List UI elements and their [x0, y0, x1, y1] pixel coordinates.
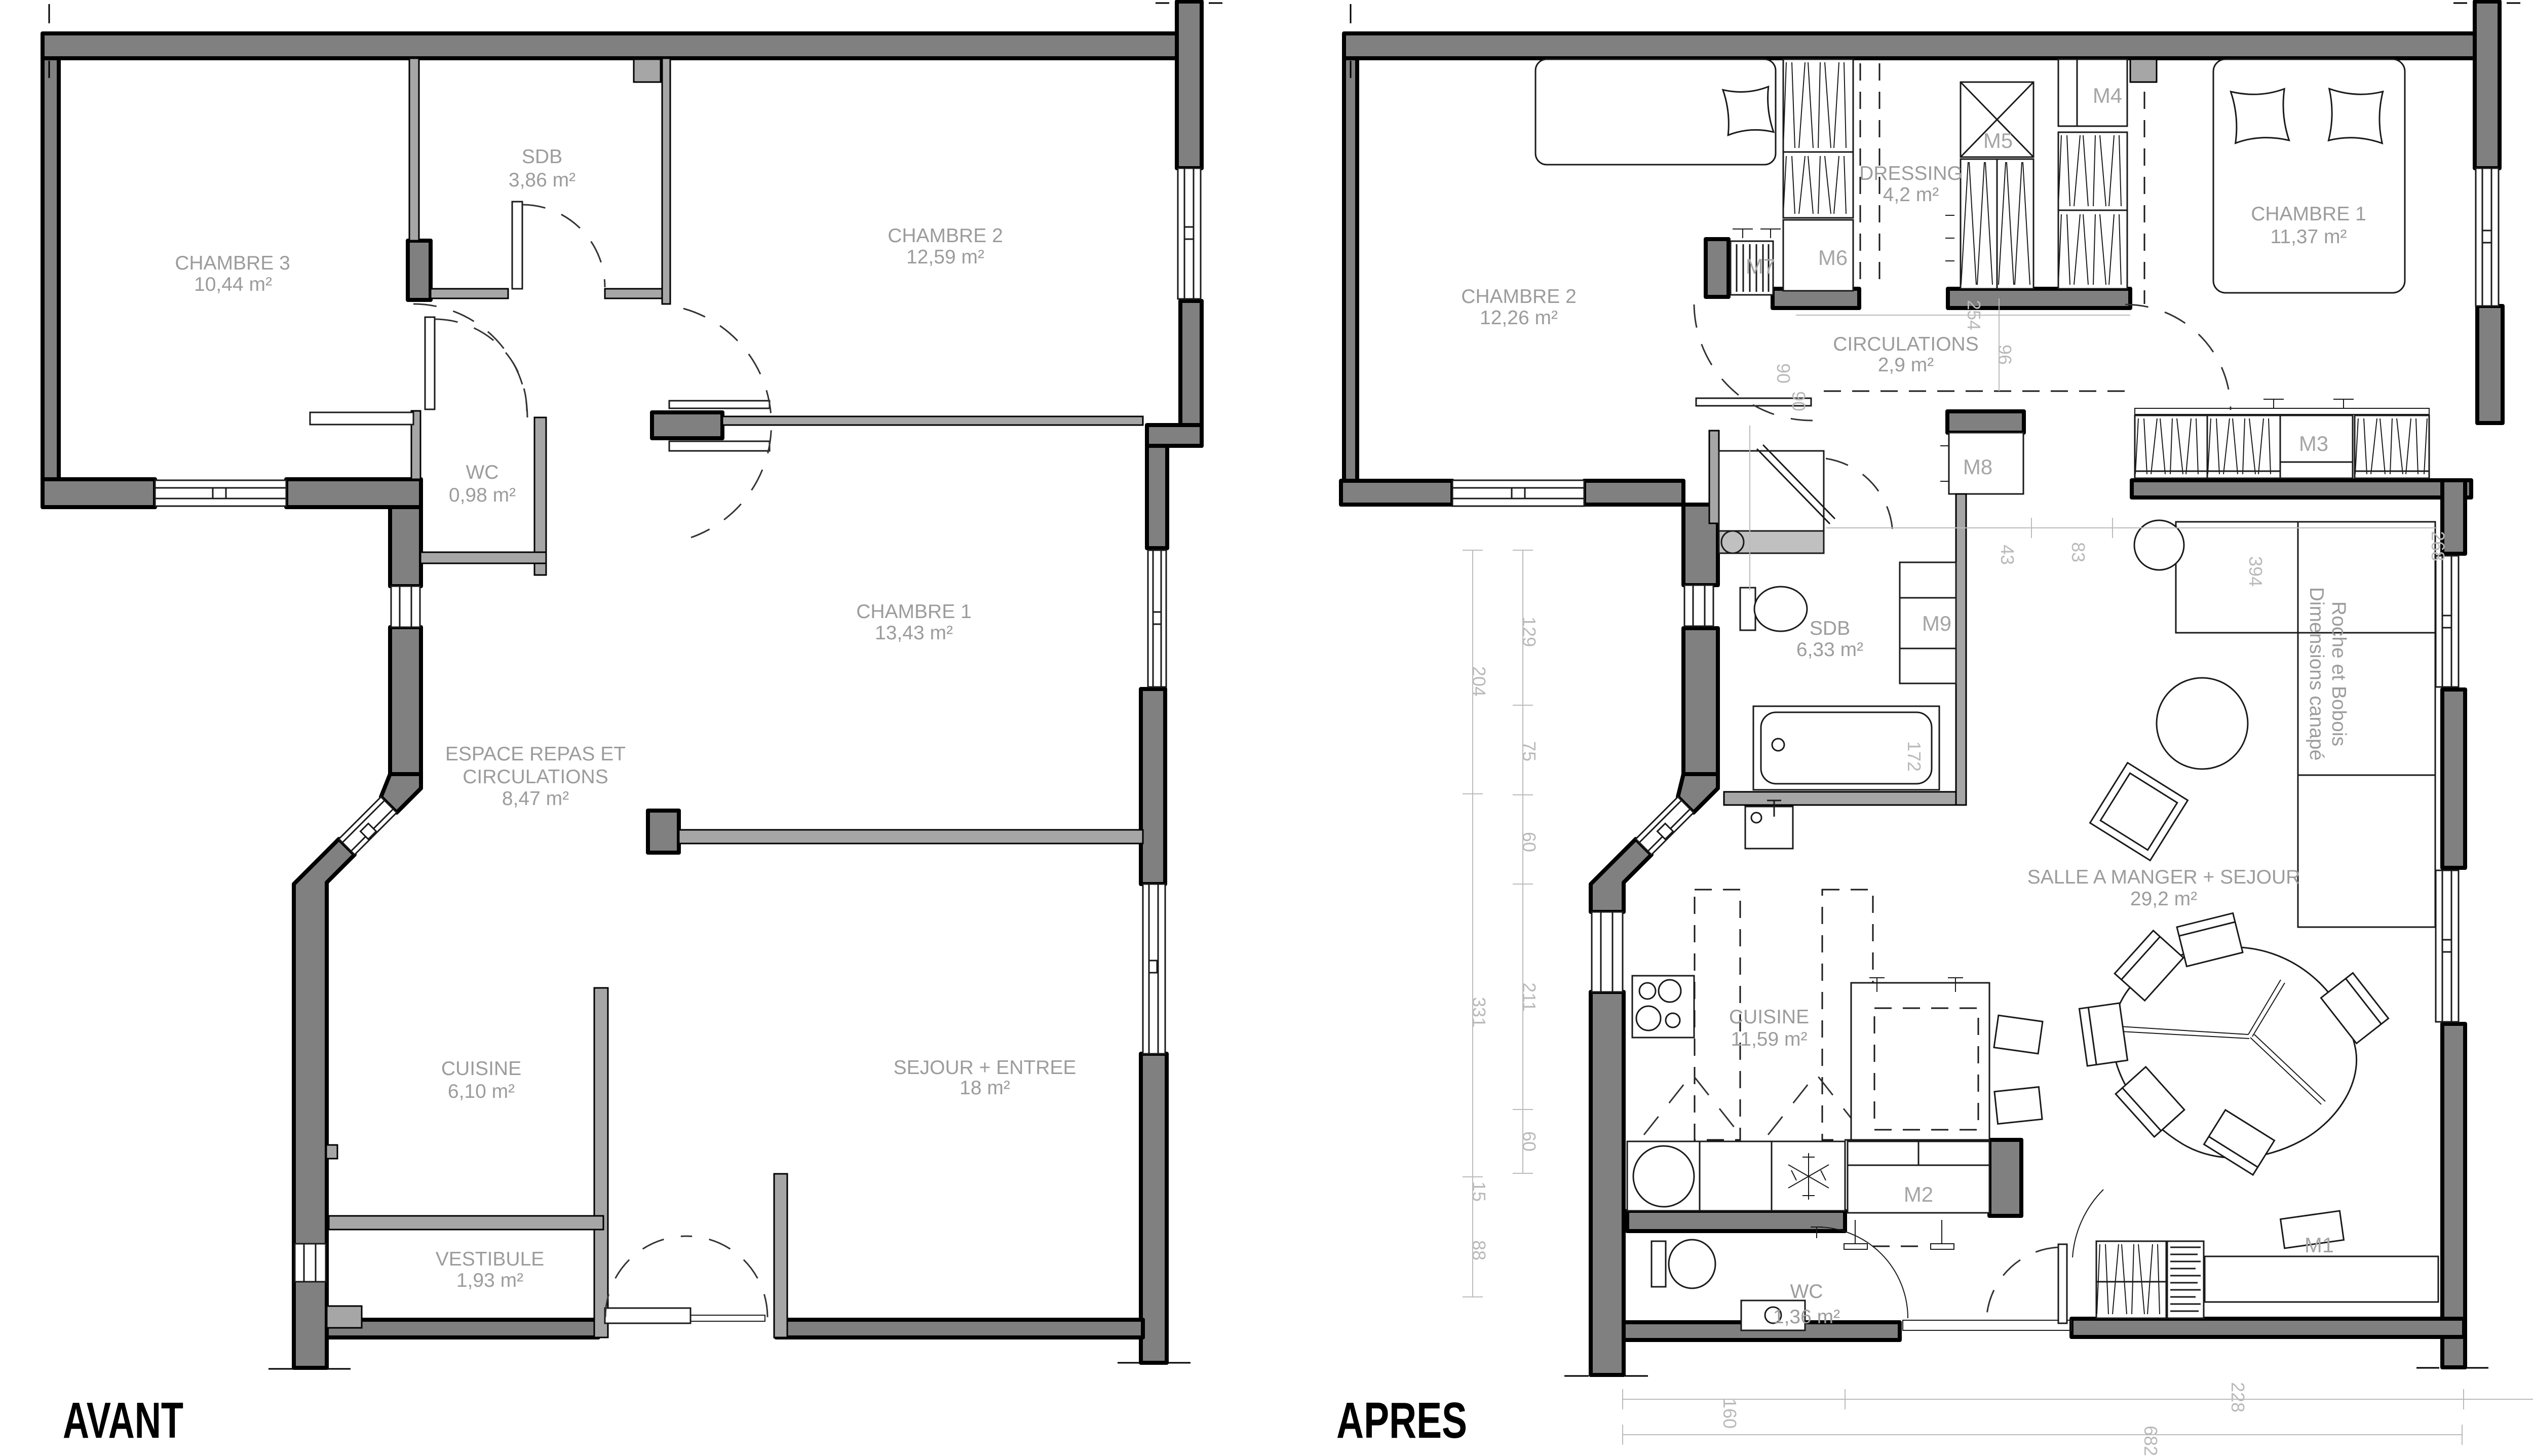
svg-text:90: 90: [1788, 391, 1809, 411]
svg-text:M3: M3: [2299, 432, 2328, 455]
svg-text:15: 15: [1469, 1181, 1489, 1202]
svg-text:254: 254: [1964, 300, 1984, 330]
svg-text:M4: M4: [2093, 84, 2122, 107]
svg-text:4,2 m²: 4,2 m²: [1883, 184, 1939, 206]
svg-text:90: 90: [1773, 363, 1794, 384]
svg-text:CUISINE: CUISINE: [441, 1058, 521, 1080]
svg-text:13,43 m²: 13,43 m²: [875, 622, 953, 644]
svg-text:29,2 m²: 29,2 m²: [2130, 888, 2197, 910]
svg-text:6,33 m²: 6,33 m²: [1796, 639, 1863, 661]
svg-text:96: 96: [1994, 344, 2015, 365]
svg-text:SDB: SDB: [1810, 618, 1850, 639]
svg-text:129: 129: [1519, 617, 1540, 647]
svg-text:APRES: APRES: [1336, 1392, 1467, 1449]
svg-text:M2: M2: [1904, 1182, 1933, 1206]
svg-text:CHAMBRE 2: CHAMBRE 2: [888, 225, 1003, 247]
svg-text:VESTIBULE: VESTIBULE: [436, 1248, 545, 1270]
svg-text:6,10 m²: 6,10 m²: [448, 1081, 515, 1102]
svg-text:2,9 m²: 2,9 m²: [1878, 354, 1934, 376]
svg-text:M6: M6: [1818, 246, 1848, 270]
svg-text:CHAMBRE 1: CHAMBRE 1: [856, 601, 972, 623]
svg-text:11,37 m²: 11,37 m²: [2270, 226, 2347, 248]
svg-text:88: 88: [1469, 1240, 1489, 1260]
svg-text:172: 172: [1904, 741, 1925, 772]
svg-text:Dimensions canapé: Dimensions canapé: [2306, 587, 2327, 761]
svg-text:CIRCULATIONS: CIRCULATIONS: [463, 766, 608, 788]
svg-text:M1: M1: [2305, 1233, 2334, 1257]
svg-text:WC: WC: [1790, 1281, 1823, 1302]
svg-text:394: 394: [2245, 556, 2266, 587]
svg-text:60: 60: [1519, 832, 1540, 852]
svg-text:CHAMBRE 1: CHAMBRE 1: [2251, 203, 2366, 225]
svg-text:83: 83: [2068, 542, 2089, 562]
svg-text:WC: WC: [466, 462, 499, 483]
svg-text:43: 43: [1997, 545, 2018, 565]
svg-text:M9: M9: [1922, 611, 1951, 635]
svg-text:10,44 m²: 10,44 m²: [194, 274, 272, 295]
svg-text:ESPACE REPAS ET: ESPACE REPAS ET: [445, 743, 626, 765]
svg-text:75: 75: [1519, 741, 1540, 761]
svg-text:CUISINE: CUISINE: [1729, 1006, 1809, 1028]
svg-text:SALLE A MANGER + SEJOUR: SALLE A MANGER + SEJOUR: [2027, 866, 2300, 888]
svg-text:Roche et Bobois: Roche et Bobois: [2328, 601, 2350, 746]
svg-text:8,47 m²: 8,47 m²: [502, 788, 569, 810]
svg-text:DRESSING: DRESSING: [1859, 163, 1963, 184]
svg-text:12,26 m²: 12,26 m²: [1480, 307, 1558, 329]
svg-text:682: 682: [2140, 1426, 2161, 1456]
svg-text:211: 211: [1519, 982, 1540, 1011]
svg-text:12,59 m²: 12,59 m²: [906, 246, 984, 268]
svg-text:CHAMBRE 3: CHAMBRE 3: [175, 252, 290, 274]
svg-text:11,59 m²: 11,59 m²: [1731, 1028, 1807, 1050]
svg-text:M5: M5: [1983, 129, 2013, 152]
svg-text:SEJOUR + ENTREE: SEJOUR + ENTREE: [894, 1057, 1077, 1079]
svg-text:1,36 m²: 1,36 m²: [1773, 1306, 1840, 1328]
svg-text:160: 160: [1719, 1398, 1740, 1429]
svg-text:331: 331: [1469, 997, 1489, 1027]
svg-text:3,86 m²: 3,86 m²: [509, 169, 575, 191]
svg-text:60: 60: [1519, 1131, 1540, 1152]
svg-text:M7: M7: [1746, 254, 1775, 278]
svg-text:18 m²: 18 m²: [960, 1077, 1010, 1099]
svg-text:M8: M8: [1963, 455, 1992, 479]
svg-text:AVANT: AVANT: [63, 1392, 183, 1449]
svg-text:268: 268: [2428, 531, 2448, 561]
svg-text:204: 204: [1469, 666, 1489, 697]
svg-text:0,98 m²: 0,98 m²: [449, 484, 516, 506]
svg-text:1,93 m²: 1,93 m²: [456, 1270, 523, 1291]
svg-text:SDB: SDB: [522, 146, 562, 168]
svg-text:CHAMBRE 2: CHAMBRE 2: [1461, 286, 1577, 308]
svg-text:228: 228: [2228, 1382, 2248, 1412]
svg-text:CIRCULATIONS: CIRCULATIONS: [1833, 333, 1978, 355]
